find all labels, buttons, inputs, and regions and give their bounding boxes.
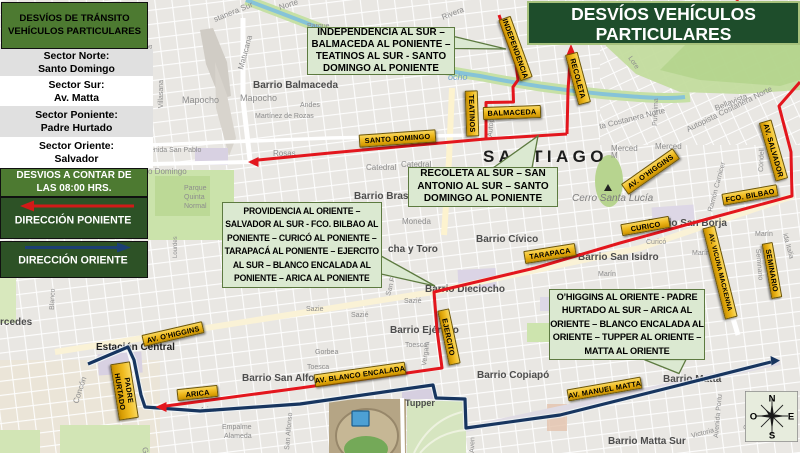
svg-text:Empalme: Empalme [222,424,252,431]
svg-text:Aven: Aven [469,437,477,453]
svg-text:Barrio Copiapó: Barrio Copiapó [477,370,549,381]
svg-text:Barrio Bras: Barrio Bras [354,191,409,202]
svg-text:Sazié: Sazié [404,298,422,305]
svg-text:S: S [769,431,775,442]
svg-text:cha y Toro: cha y Toro [388,244,438,255]
svg-text:Mapocho: Mapocho [182,95,219,105]
svg-text:Quinta: Quinta [184,194,205,201]
svg-text:Barrio San Isidro: Barrio San Isidro [578,252,659,263]
svg-text:Merced: Merced [611,144,638,153]
svg-text:Andes: Andes [300,102,320,109]
svg-text:Barrio Cívico: Barrio Cívico [476,234,538,245]
svg-text:Curicó: Curicó [646,239,666,246]
svg-text:Catedral: Catedral [366,163,396,172]
svg-text:Gorbea: Gorbea [315,349,338,356]
svg-text:DIRECCIÓN ORIENTE: DIRECCIÓN ORIENTE [18,254,127,267]
svg-text:Toesca: Toesca [307,364,329,371]
svg-text:Mapocho: Mapocho [240,93,277,103]
svg-text:Moneda: Moneda [402,217,431,226]
svg-text:Lourdes: Lourdes [173,236,179,258]
svg-text:o Domingo: o Domingo [148,167,187,176]
svg-text:Barrio Matta Sur: Barrio Matta Sur [608,436,686,447]
svg-text:Blanco: Blanco [49,288,57,310]
svg-text:E: E [788,412,794,423]
svg-text:DIRECCIÓN PONIENTE: DIRECCIÓN PONIENTE [15,214,132,227]
svg-text:Villasana: Villasana [158,80,165,108]
svg-text:Alameda: Alameda [224,433,252,440]
svg-text:Tupper: Tupper [405,398,435,408]
svg-text:Parque: Parque [184,185,207,192]
svg-text:Normal: Normal [184,203,207,210]
svg-text:Cerro Santa Lucía: Cerro Santa Lucía [572,193,654,204]
svg-text:Barrio Balmaceda: Barrio Balmaceda [253,80,338,91]
svg-text:N: N [769,394,776,405]
svg-text:Martínez de Rozas: Martínez de Rozas [255,113,314,120]
svg-text:Marín: Marín [598,271,616,278]
svg-text:O: O [750,412,757,423]
svg-text:Sazié: Sazié [351,312,369,319]
svg-text:Sazie: Sazie [306,306,324,313]
svg-text:enida San Pablo: enida San Pablo [150,147,201,154]
svg-text:Marín: Marín [755,231,773,238]
svg-text:rcedes: rcedes [0,317,33,328]
svg-text:Condell: Condell [758,148,766,172]
svg-text:Estación Central: Estación Central [96,342,175,353]
